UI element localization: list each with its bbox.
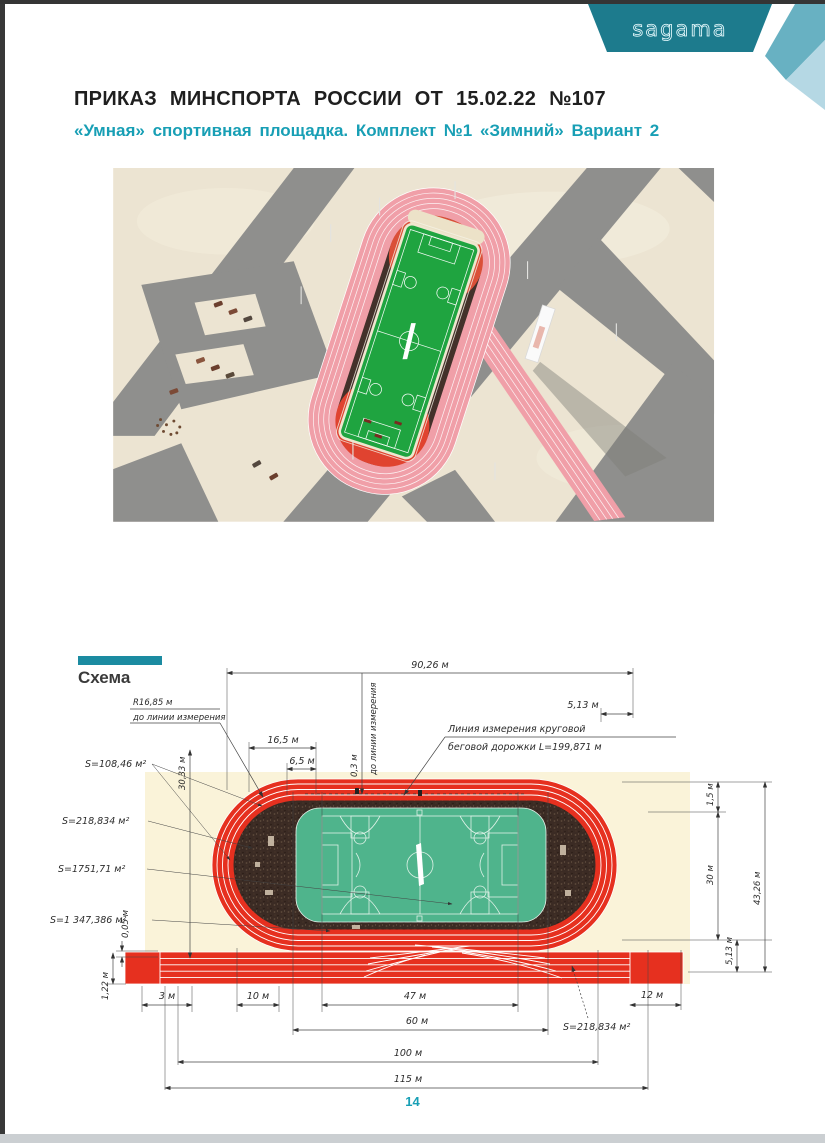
sagama-logo: sagama (632, 17, 727, 41)
dim-radius-1: R16,85 м (133, 698, 173, 708)
dim-area-field: S=1751,71 м² (58, 864, 125, 875)
dim-6-5: 6,5 м (289, 756, 314, 767)
dim-bottom-10: 10 м (247, 991, 269, 1002)
dim-radius-2: до линии измерения (132, 713, 226, 723)
dim-bottom-12: 12 м (641, 990, 663, 1001)
page-number: 14 (0, 1094, 825, 1109)
dim-area-sectors-b: S=218,834 м² (563, 1022, 630, 1033)
dim-top-offset: 5,13 м (567, 700, 598, 711)
dim-right-43-26: 43,26 м (753, 871, 763, 905)
dim-30-33: 30,33 м (178, 756, 188, 790)
dim-area-infield: S=1 347,386 м² (50, 915, 127, 926)
page-subtitle: «Умная» спортивная площадка. Комплект №1… (74, 121, 659, 141)
dim-top-width: 90,26 м (411, 660, 448, 671)
page-title: ПРИКАЗ МИНСПОРТА РОССИИ ОТ 15.02.22 №107 (74, 88, 606, 111)
dim-bottom-100: 100 м (394, 1048, 422, 1059)
dim-area-track-ends: S=108,46 м² (85, 759, 146, 770)
sports-field (296, 808, 546, 922)
dim-bottom-115: 115 м (394, 1074, 422, 1085)
page-bottom-edge (0, 1134, 825, 1143)
dim-measure-1: Линия измерения круговой (447, 724, 585, 735)
dim-measure-2: беговой дорожки L=199,871 м (448, 742, 602, 753)
dim-area-sectors: S=218,834 м² (62, 816, 129, 827)
dim-16-5: 16,5 м (267, 735, 298, 746)
dim-bottom-3: 3 м (159, 991, 175, 1002)
dim-right-5-13: 5,13 м (725, 936, 735, 965)
document-page: sagama ПРИКАЗ МИНСПОРТА РОССИИ ОТ 15.02.… (0, 0, 825, 1143)
dim-to-measure-line: до линии измерения (369, 682, 379, 776)
stadium-schematic: 90,26 м 5,13 м R16,85 м до линии измерен… (0, 645, 825, 1115)
dim-0-05: 0,05 м (121, 909, 131, 938)
dim-1-22: 1,22 м (101, 971, 111, 1000)
stadium-3d-render (0, 168, 825, 646)
dim-right-30: 30 м (706, 864, 716, 885)
dim-bottom-47: 47 м (404, 991, 426, 1002)
dim-0-3: 0,3 м (350, 754, 360, 777)
dim-right-1-5: 1,5 м (706, 783, 716, 806)
dim-bottom-60: 60 м (406, 1016, 428, 1027)
